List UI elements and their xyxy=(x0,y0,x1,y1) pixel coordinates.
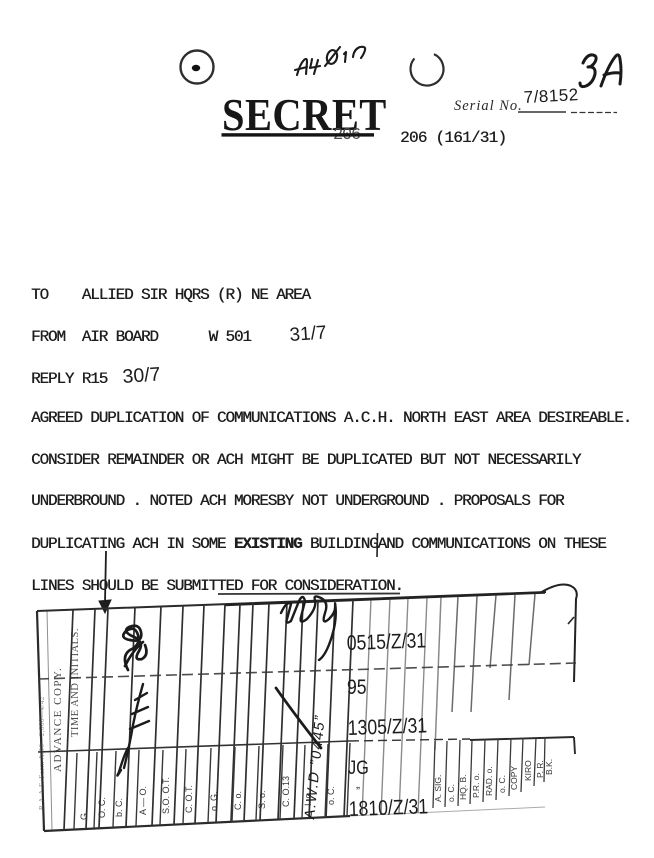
svg-text:R.A.A.F. Form A.36—2,000—4/42: R.A.A.F. Form A.36—2,000—4/42 xyxy=(38,696,46,810)
svg-text:A — O.: A — O. xyxy=(138,786,148,815)
svg-text:B.K.: B.K. xyxy=(544,759,554,775)
svg-text:KIRO: KIRO xyxy=(523,760,533,781)
svg-text:o. C.: o. C. xyxy=(326,786,336,805)
svg-text:C. o.: C. o. xyxy=(233,791,243,810)
svg-text:7/8152: 7/8152 xyxy=(523,85,579,107)
svg-text:o. C.: o. C. xyxy=(497,775,507,793)
svg-text:30/7: 30/7 xyxy=(122,363,161,388)
svg-text:JG: JG xyxy=(348,757,369,778)
svg-text:95: 95 xyxy=(347,676,367,700)
svg-text:HQ. B.: HQ. B. xyxy=(458,774,468,800)
svg-text:S.O. O.T.: S.O. O.T. xyxy=(161,777,171,814)
svg-text:TIME AND INITIALS.: TIME AND INITIALS. xyxy=(70,628,81,737)
svg-text:1810/Z/31: 1810/Z/31 xyxy=(348,795,428,822)
svg-text:A. SIG.: A. SIG. xyxy=(433,775,443,802)
svg-text:„: „ xyxy=(356,777,360,791)
svg-text:COPY: COPY xyxy=(509,766,519,790)
svg-text:31/7: 31/7 xyxy=(289,322,327,346)
svg-text:S. o.: S. o. xyxy=(257,790,267,809)
svg-text:C. O.T.: C. O.T. xyxy=(184,785,194,813)
svg-text:ADVANCE COPY.: ADVANCE COPY. xyxy=(52,667,64,772)
svg-text:G.: G. xyxy=(79,810,89,820)
svg-text:1305/Z/31: 1305/Z/31 xyxy=(347,714,427,741)
svg-text:O. C.: O. C. xyxy=(97,797,107,818)
svg-text:b. C.: b. C. xyxy=(114,798,124,817)
svg-text:C. O.13: C. O.13 xyxy=(281,776,291,807)
svg-text:o. C.: o. C. xyxy=(446,784,456,802)
svg-text:RAD. o.: RAD. o. xyxy=(484,766,494,796)
svg-text:0515/Z/31: 0515/Z/31 xyxy=(346,629,426,656)
svg-text:o. G.: o. G. xyxy=(209,791,219,811)
svg-text:I. o.: I. o. xyxy=(303,791,313,806)
svg-text:P.R. o.: P.R. o. xyxy=(471,773,481,798)
